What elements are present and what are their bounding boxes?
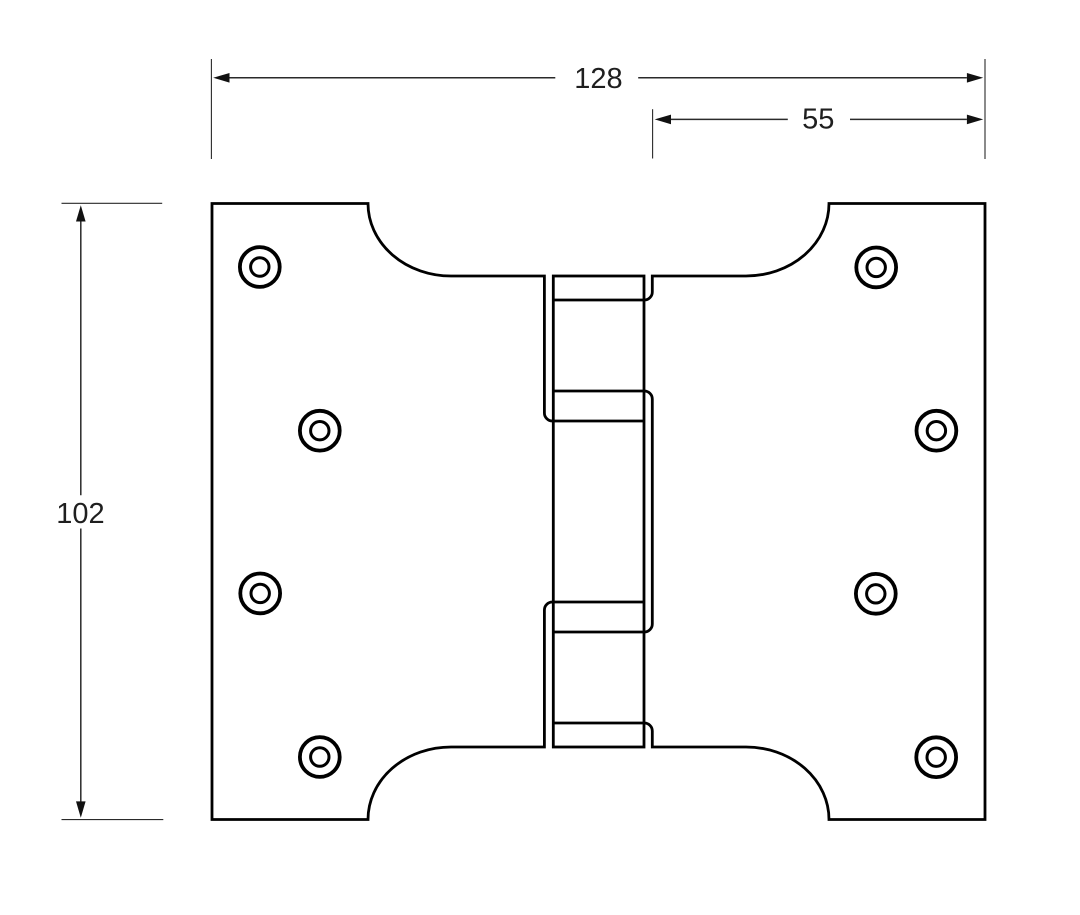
svg-text:128: 128 [574,63,622,95]
svg-text:55: 55 [802,104,834,136]
svg-text:102: 102 [56,498,104,530]
